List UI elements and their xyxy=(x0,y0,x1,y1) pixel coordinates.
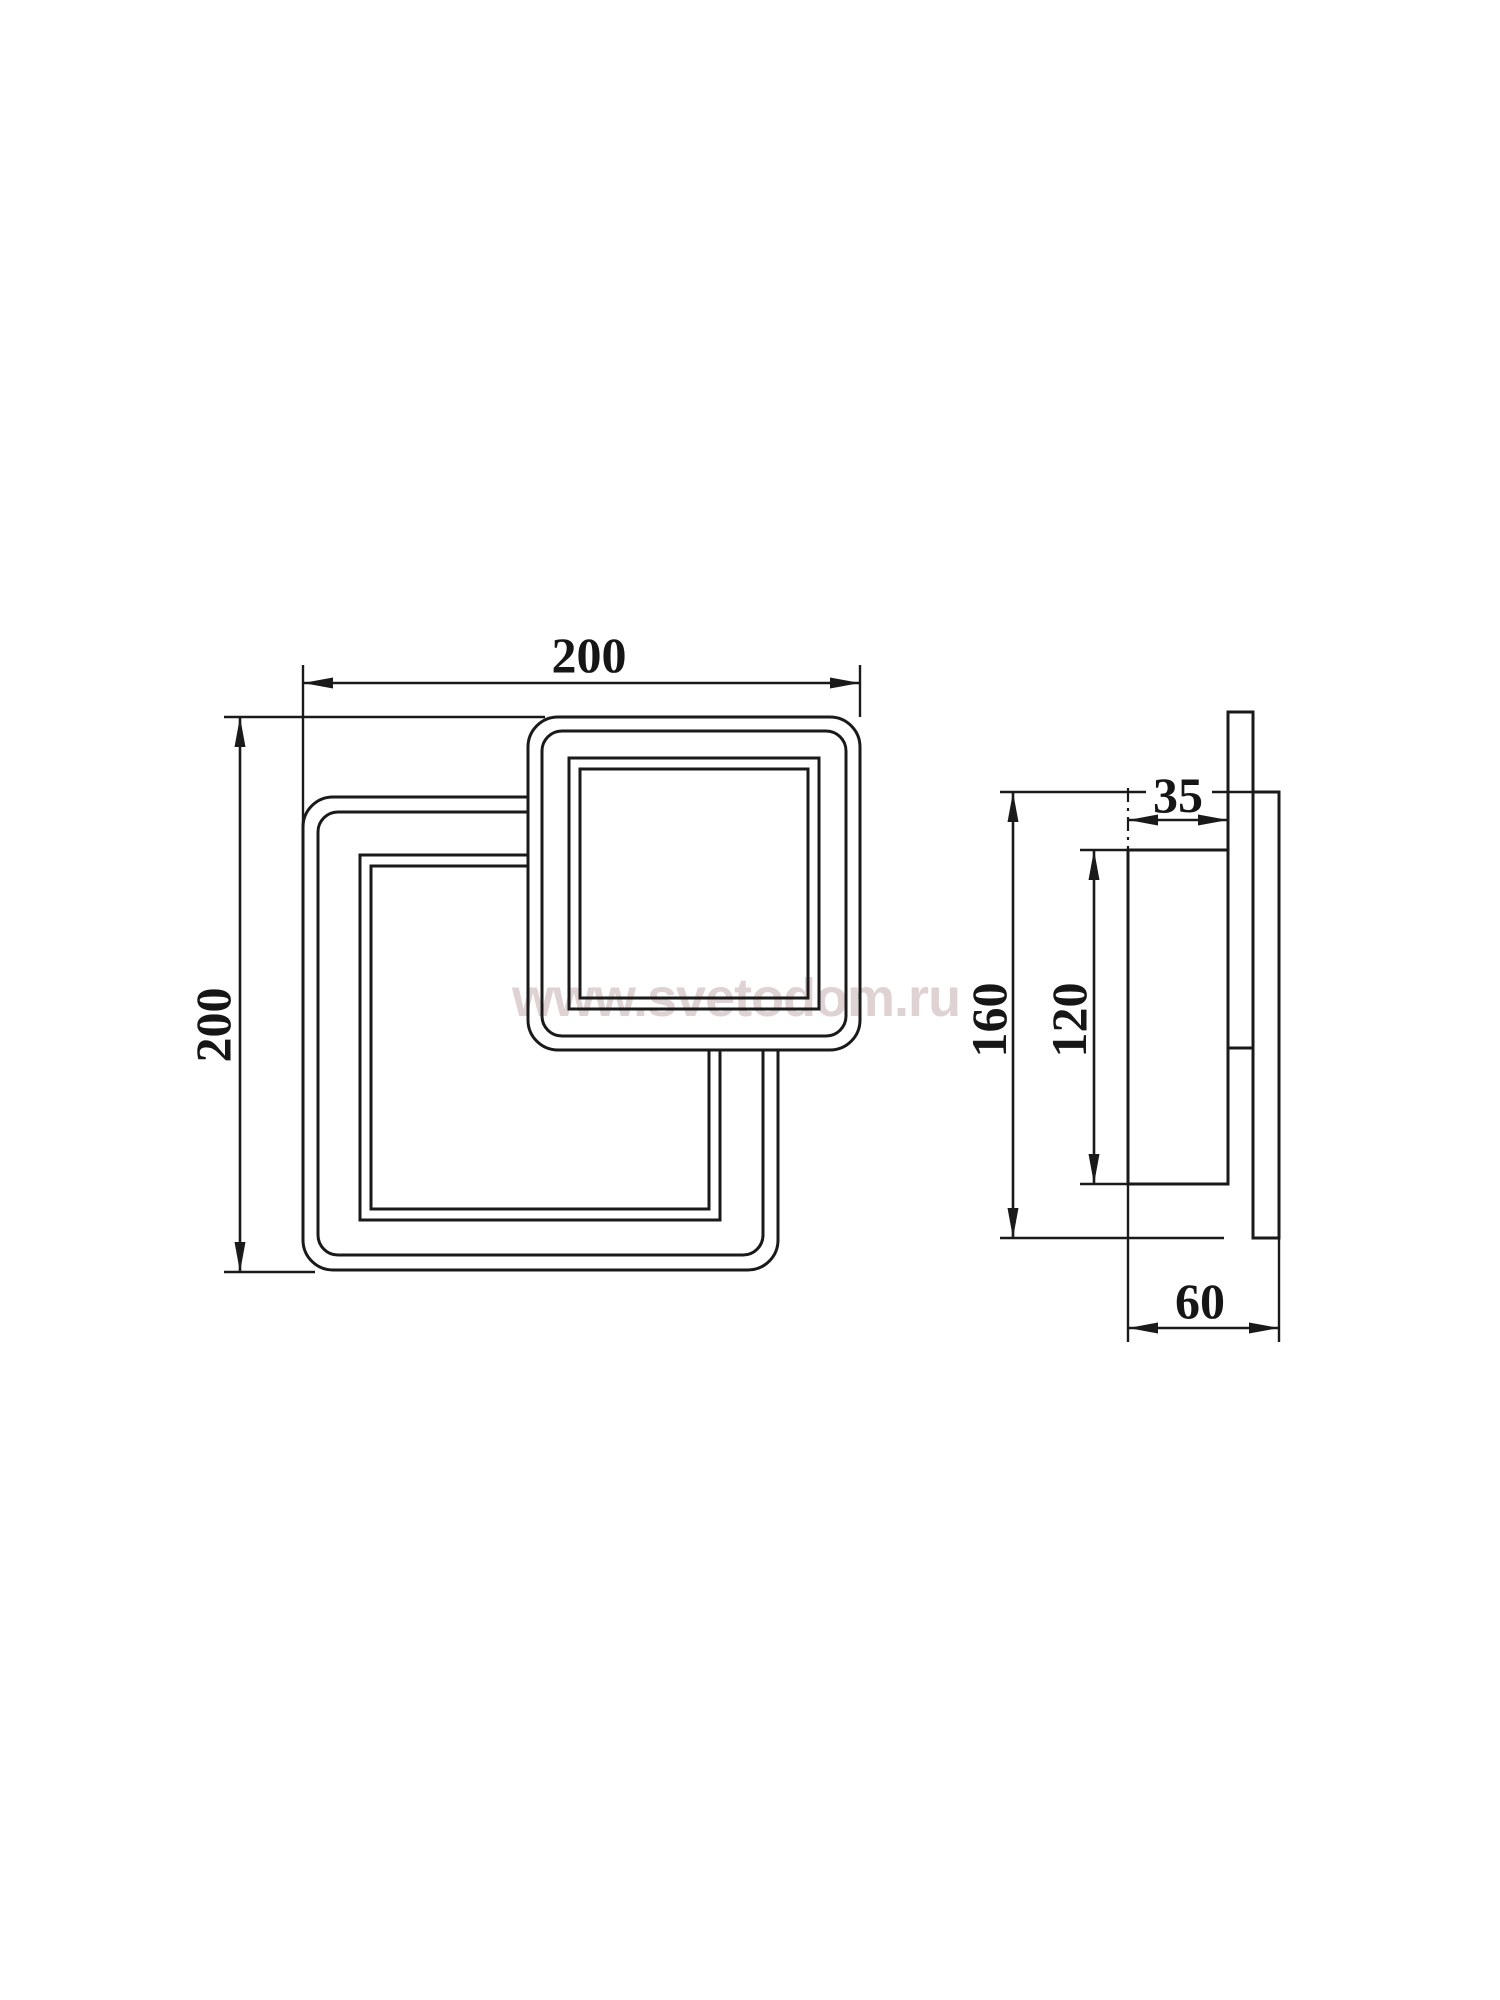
side-bracket-height-dimension: 120 xyxy=(1041,850,1130,1184)
arrowhead-left-icon xyxy=(1128,1323,1158,1334)
bracket-box-profile xyxy=(1128,850,1228,1184)
lamp-dimension-drawing: www.svetodom.ru 200 200 xyxy=(0,0,1500,2000)
big-ring-profile xyxy=(1253,792,1279,1238)
side-protrusion-label: 35 xyxy=(1153,767,1203,823)
small-ring-profile xyxy=(1228,712,1253,1048)
arrowhead-right-icon xyxy=(1249,1323,1279,1334)
arrowhead-right-icon xyxy=(830,678,860,689)
arrowhead-up-icon xyxy=(235,717,246,747)
front-height-dimension: 200 xyxy=(185,717,545,1272)
arrowhead-down-icon xyxy=(235,1242,246,1272)
front-width-label: 200 xyxy=(552,627,627,683)
front-height-label: 200 xyxy=(185,988,241,1063)
side-bracket-height-label: 120 xyxy=(1041,983,1097,1058)
side-view: 35 160 120 60 xyxy=(961,712,1279,1342)
arrowhead-up-icon xyxy=(1089,850,1100,880)
arrowhead-up-icon xyxy=(1008,792,1019,822)
front-view: www.svetodom.ru 200 200 xyxy=(185,627,960,1272)
arrowhead-left-icon xyxy=(303,678,333,689)
side-depth-label: 60 xyxy=(1175,1273,1225,1329)
arrowhead-down-icon xyxy=(1089,1154,1100,1184)
arrowhead-down-icon xyxy=(1008,1208,1019,1238)
side-protrusion-dimension: 35 xyxy=(1128,767,1228,852)
drawing-page: www.svetodom.ru 200 200 xyxy=(0,0,1500,2000)
side-depth-dimension: 60 xyxy=(1128,1184,1279,1342)
side-height-dimension: 160 xyxy=(961,792,1253,1238)
side-height-label: 160 xyxy=(961,983,1017,1058)
